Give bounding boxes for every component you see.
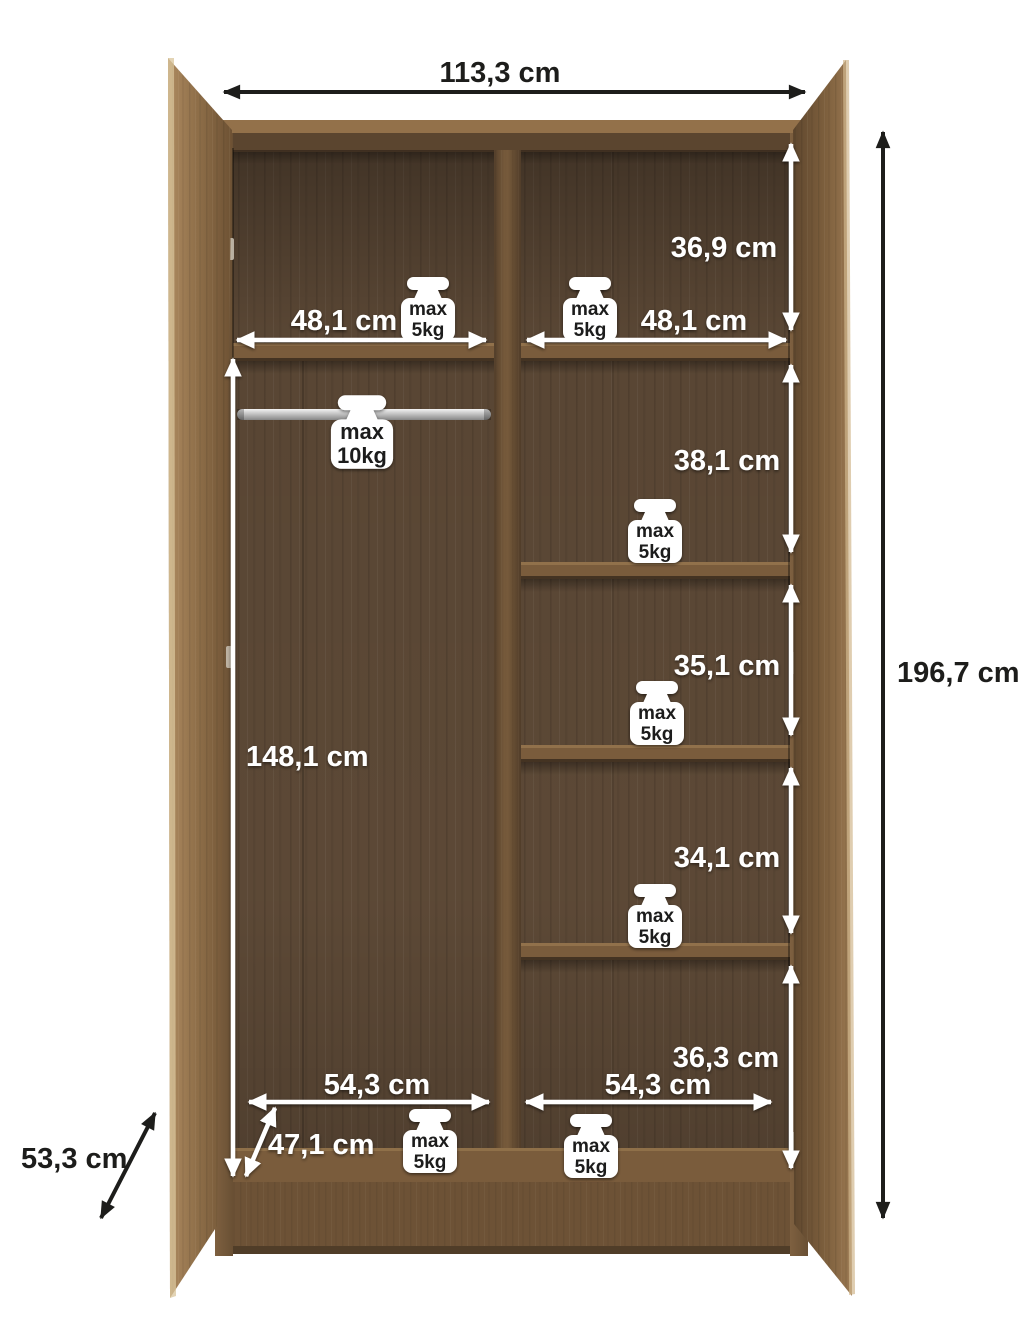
weight-limit-icon: max 5kg xyxy=(564,1114,618,1178)
weight-limit-text: 5kg xyxy=(639,927,672,948)
rod-weight-limit-icon: max 10kg xyxy=(331,395,393,469)
weight-limit-icon: max 5kg xyxy=(401,277,455,341)
weight-limit-text: 5kg xyxy=(639,542,672,563)
weight-limit-text: 5kg xyxy=(412,320,445,341)
right-section2-label: 38,1 cm xyxy=(674,445,780,477)
weight-limit-text: 5kg xyxy=(414,1152,447,1173)
hanging-height-label: 148,1 cm xyxy=(246,741,369,773)
right-section3-label: 35,1 cm xyxy=(674,650,780,682)
top-rail xyxy=(215,131,808,152)
weight-limit-text: max xyxy=(411,1131,449,1152)
right-shelf-1 xyxy=(521,562,790,592)
weight-limit-text: max xyxy=(572,1136,610,1157)
weight-limit-icon: max 5kg xyxy=(563,277,617,341)
right-door-open xyxy=(793,60,855,1296)
right-section1-label: 36,9 cm xyxy=(671,232,777,264)
overall-depth-label: 53,3 cm xyxy=(21,1143,127,1175)
rod-weight-limit-text: 10kg xyxy=(337,443,387,468)
right-shelf-width-label: 48,1 cm xyxy=(641,305,747,337)
wardrobe-carcass xyxy=(215,120,808,1256)
weight-limit-icon: max 5kg xyxy=(628,884,682,948)
left-bottom-width-label: 54,3 cm xyxy=(324,1069,430,1101)
right-shelf-2 xyxy=(521,745,790,775)
weight-limit-text: max xyxy=(638,703,676,724)
top-panel-edge xyxy=(215,120,808,133)
overall-height-label: 196,7 cm xyxy=(897,657,1020,689)
weight-limit-text: max xyxy=(571,299,609,320)
weight-limit-text: 5kg xyxy=(574,320,607,341)
rod-weight-limit-text: max xyxy=(340,419,384,444)
diagram-canvas: 113,3 cm 196,7 cm 53,3 cm 48,1 cm 48,1 c… xyxy=(0,0,1024,1340)
weight-limit-icon: max 5kg xyxy=(630,681,684,745)
left-shelf-width-label: 48,1 cm xyxy=(291,305,397,337)
weight-limit-text: 5kg xyxy=(575,1157,608,1178)
overall-width-label: 113,3 cm xyxy=(440,57,561,89)
weight-limit-text: max xyxy=(409,299,447,320)
interior-depth-label: 47,1 cm xyxy=(268,1129,374,1161)
right-section4-label: 34,1 cm xyxy=(674,842,780,874)
right-bottom-width-label: 54,3 cm xyxy=(605,1069,711,1101)
wardrobe-dimension-diagram: 113,3 cm 196,7 cm 53,3 cm 48,1 cm 48,1 c… xyxy=(0,0,1024,1340)
weight-limit-text: max xyxy=(636,906,674,927)
weight-limit-icon: max 5kg xyxy=(628,499,682,563)
weight-limit-text: 5kg xyxy=(641,724,674,745)
weight-limit-text: max xyxy=(636,521,674,542)
weight-limit-icon: max 5kg xyxy=(403,1109,457,1173)
